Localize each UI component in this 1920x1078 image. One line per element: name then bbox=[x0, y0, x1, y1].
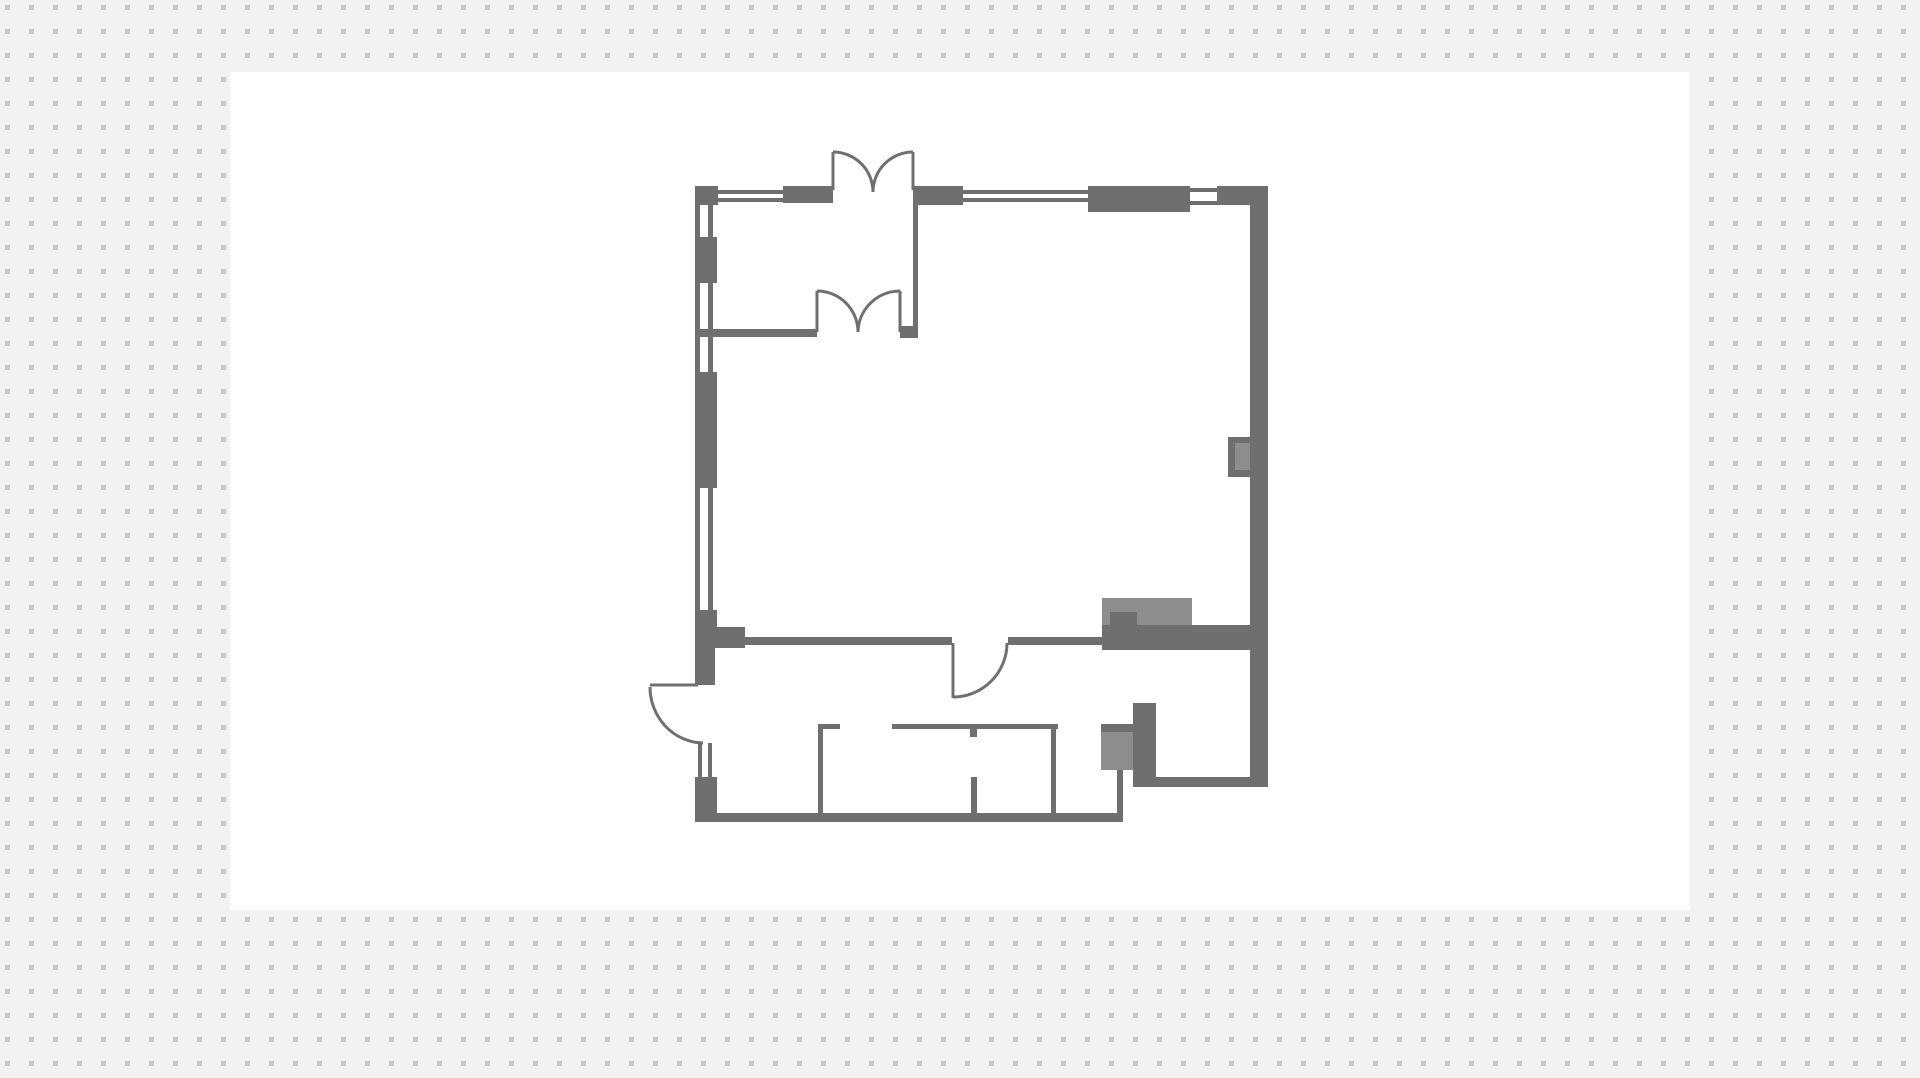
wc-stall-right-wall[interactable] bbox=[1051, 729, 1056, 813]
top-wall-corner-tl[interactable] bbox=[695, 186, 718, 205]
south-wall-thin-left[interactable] bbox=[745, 637, 952, 645]
left-window-e-outer[interactable] bbox=[698, 743, 702, 777]
bottom-wall[interactable] bbox=[695, 813, 1123, 822]
vestibule-door-jamb-block[interactable] bbox=[900, 326, 918, 338]
top-wall-seg-2[interactable] bbox=[913, 186, 963, 205]
appliance-fixture[interactable] bbox=[1101, 732, 1133, 770]
right-wall[interactable] bbox=[1250, 205, 1268, 787]
top-window-2-inner[interactable] bbox=[963, 198, 1088, 202]
left-window-b-outer[interactable] bbox=[695, 283, 700, 329]
top-wall-corner-tr[interactable] bbox=[1217, 186, 1268, 205]
vestibule-right-wall[interactable] bbox=[913, 203, 918, 337]
storage-room-wall-block[interactable] bbox=[1133, 703, 1156, 787]
top-wall-seg-1[interactable] bbox=[783, 186, 833, 203]
top-window-3-outer[interactable] bbox=[1190, 188, 1217, 192]
wc-stall-divider-bottom[interactable] bbox=[971, 777, 977, 815]
wc-partition-left[interactable] bbox=[818, 724, 823, 815]
top-window-1-outer[interactable] bbox=[718, 190, 783, 194]
left-window-a-outer[interactable] bbox=[695, 205, 700, 237]
south-wall-thin-right[interactable] bbox=[1008, 637, 1102, 645]
left-wall-seg-3[interactable] bbox=[695, 610, 717, 627]
wc-stall-divider-top[interactable] bbox=[970, 729, 977, 737]
left-window-b-inner[interactable] bbox=[708, 283, 713, 329]
top-window-1-inner[interactable] bbox=[718, 198, 783, 202]
left-wall-seg-4[interactable] bbox=[695, 648, 715, 685]
counter-wall-block[interactable] bbox=[1110, 612, 1137, 625]
appliance-top-bar[interactable] bbox=[1101, 724, 1133, 732]
left-wall-seg-2[interactable] bbox=[695, 372, 717, 488]
left-window-d-inner[interactable] bbox=[708, 488, 713, 610]
left-window-d-outer[interactable] bbox=[695, 488, 700, 610]
left-wall-seg-1[interactable] bbox=[695, 237, 717, 283]
left-window-a-inner[interactable] bbox=[708, 205, 713, 237]
south-wall-thick-band[interactable] bbox=[1102, 625, 1255, 650]
left-window-c-outer[interactable] bbox=[695, 337, 700, 372]
vestibule-bottom-wall[interactable] bbox=[695, 329, 817, 337]
top-window-3-inner[interactable] bbox=[1190, 201, 1217, 205]
bottom-step-wall[interactable] bbox=[1117, 770, 1123, 815]
left-window-e-inner[interactable] bbox=[708, 743, 712, 777]
wc-stall-top-bar[interactable] bbox=[892, 724, 1058, 729]
left-wall-pier[interactable] bbox=[695, 627, 745, 648]
top-window-2-outer[interactable] bbox=[963, 190, 1088, 194]
left-window-c-inner[interactable] bbox=[708, 337, 713, 372]
floorplan-editor-viewport bbox=[0, 0, 1920, 1078]
right-wall-fixture-inner[interactable] bbox=[1235, 443, 1250, 470]
storage-room-bottom-wall[interactable] bbox=[1150, 777, 1268, 787]
top-wall-seg-3-thick[interactable] bbox=[1088, 186, 1190, 212]
design-canvas[interactable] bbox=[0, 0, 1920, 1078]
